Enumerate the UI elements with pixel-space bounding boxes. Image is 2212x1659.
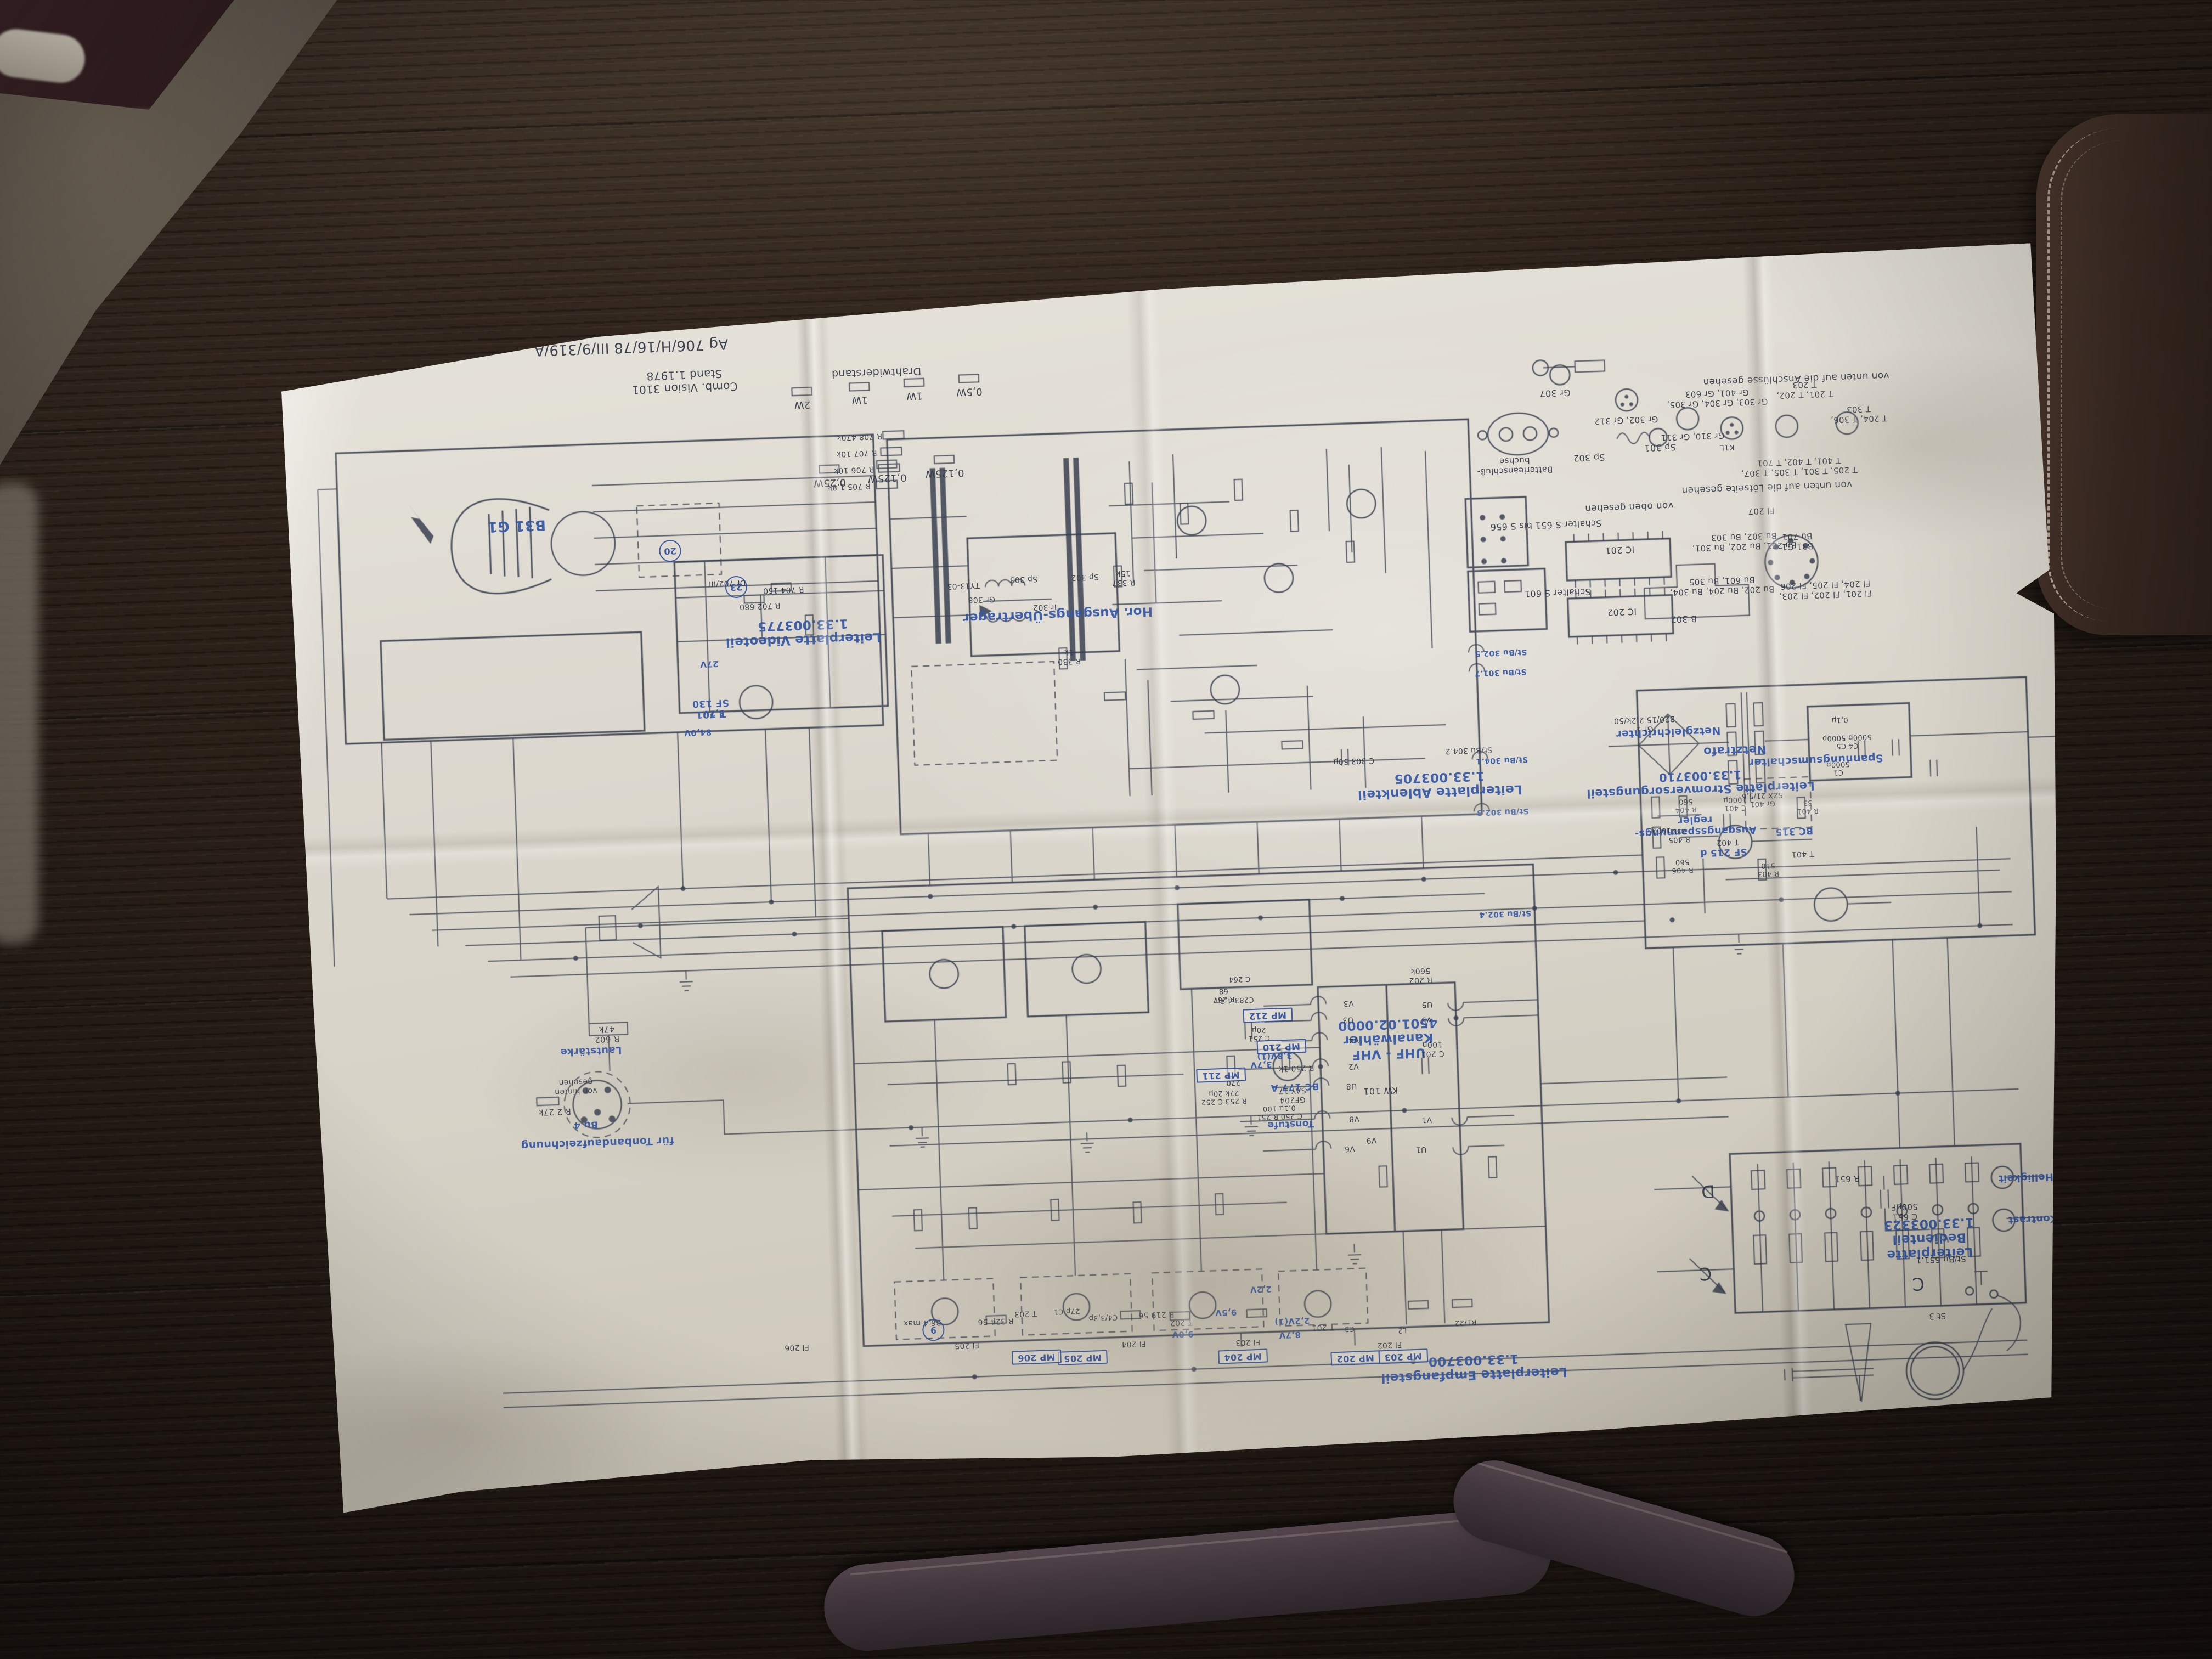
schematic-text: R 706 10k [833,465,874,475]
schematic-text: V9 [1366,1136,1377,1145]
schematic-text: R 401 33 [1797,798,1819,815]
schematic-text: C 651 500µF [1891,1201,1918,1222]
schematic-text: R 406 560 [1671,857,1694,874]
schematic-text: V1 [1421,1115,1432,1124]
schematic-text: Fl 207 [1748,505,1775,516]
schematic-text: Batterieanschluß- buchse [1476,454,1553,476]
schematic-text: T 203 [1014,1308,1037,1318]
schematic-text: K1L [1719,442,1734,452]
schematic-text: U5 [1421,1000,1432,1009]
leather-strap-left-segment [821,1504,1555,1654]
module-label: BC 315 [1775,825,1813,837]
schematic-text: R 324 56 [978,1316,1014,1327]
module-label: Helligkeit [1998,1171,2053,1184]
schematic-text: 20 [659,539,681,562]
schematic-text: Fl 201, Fl 202, Fl 203, Fl 204, Fl 205, … [1779,578,1872,601]
schematic-text: T 202 [1170,1317,1193,1327]
module-label: 2,2V(1) [1274,1315,1310,1326]
schematic-text: R 250 1k [1278,1063,1314,1073]
module-label: St/Bu 301.7 [1474,667,1527,678]
module-label: Spannungsumschalter [1748,752,1883,769]
module-label: 3,2V [703,708,725,718]
schematic-text: Gr 302, Gr 312 [1594,414,1658,426]
module-label: 2,2V [1250,1284,1272,1294]
schematic-text: Gr 310, Gr 311 [1661,430,1725,442]
schematic-text: R 602 47k [594,1024,620,1044]
schematic-text: von hinten gesehen [554,1077,597,1097]
measuring-point-label: MP 204 [1218,1349,1268,1364]
schematic-text: Fl 205 [955,1340,979,1350]
schematic-text: V3 [1343,998,1354,1008]
schematic-text: R1/22 [1454,1318,1476,1327]
measuring-point-label: MP 212 [1243,1008,1293,1023]
schematic-text: 9 [922,1319,945,1341]
schematic-text: Gr 307 [1539,387,1571,398]
schematic-text: Gr 1 B20/15 2,2k/50 [1613,714,1675,735]
schematic-text: R 702 680 [739,601,780,611]
schematic-text: R 330 1k [1057,647,1081,666]
schematic-text: Gr 401 SZX 21/5,6 [1742,790,1784,808]
module-label: St/Bu 302.3 [1476,806,1529,817]
schematic-text: R 219 56 [1138,1310,1175,1320]
schematic-text: GF204 SAY 17 [1278,1086,1306,1105]
schematic-text: von unten auf die Lötseite gesehen [1681,479,1853,496]
module-label: Ausgangsspannungs- regler [1634,812,1757,839]
schematic-text: 0,5W [956,385,983,398]
schematic-text: T 201 [1312,1322,1335,1332]
module-label: St/Bu 304.1 [1476,755,1528,766]
left-light-strip [0,483,38,944]
schematic-text: T 402 [1716,837,1739,847]
schematic-text: von oben gesehen [1585,500,1674,514]
module-label: St/Bu 302.5 [1475,647,1527,658]
schematic-text: C4/3,3p [1088,1313,1118,1322]
schematic-text: R 651 [1835,1173,1860,1183]
module-label: 9,0V [1172,1329,1194,1339]
schematic-text: T 401 [1791,849,1814,859]
schematic-text: R 403 510 [1757,861,1780,878]
schematic-text: R 404 560 [1675,797,1697,814]
schematic-text: Comb. Vision 3101 Stand 1.1978 [631,366,738,396]
schematic-text: 1000µ [1647,826,1671,835]
schematic-text: Fl 204 [1121,1339,1146,1348]
schematic-text: R 704 150 [763,584,804,595]
schematic-text: R 707 10k [836,448,877,459]
module-label: Bu 4 [574,1119,599,1131]
schematic-text: 1W [906,390,923,402]
schematic-text: T 201, T 202, T 203 [1776,379,1833,400]
schematic-text: B31 G1 Bu 701 [1781,531,1813,551]
schematic-text: C [1912,1273,1925,1294]
schematic-text: V2 [1348,1062,1359,1071]
schematic-text: 0,125W [925,467,964,480]
schematic-text: KW 101 [1363,1085,1398,1096]
module-label: SF 215 d [1700,846,1747,859]
schematic-text: D [1701,1181,1715,1202]
module-label: Lautstärke [560,1044,622,1058]
leather-desk-mat [2036,114,2212,635]
schematic-text: Fl 206 [785,1342,809,1352]
schematic-text: Fl 203 [1235,1337,1260,1347]
schematic-text: C 250 R 251 0,1µ 100 [1256,1103,1302,1121]
schematic-text: Bu 202, Bu 204, Bu 304, Bu 601, Bu 305 [1669,574,1774,597]
schematic-text: Fl 202 [1377,1340,1402,1350]
schematic-text: 0,1µ [1831,715,1848,724]
schematic-text: C 264 [1228,974,1250,984]
module-label: 27V [700,658,719,669]
schematic-text: T 205, T 301, T 305, T 307, T 401, T 402… [1741,455,1858,478]
schematic-text: R 705 1,8k [827,481,871,492]
schematic-text: 2W [794,398,811,410]
schematic-text: Schalter S 601 [1524,586,1591,599]
schematic-text: R 2 27k [538,1106,571,1117]
schematic-text: R 405 250 [1668,826,1690,844]
schematic-text: Schalter S 651 bis S 656 [1490,517,1602,532]
schematic-text: Sp 302 [1071,572,1099,582]
schematic-labels: Ag 706/H/16/78 III/9/319/AComb. Vision 3… [278,243,2083,1516]
measuring-point-label: MP 206 [1012,1350,1062,1365]
measuring-point-label: MP 205 [1058,1350,1108,1365]
schematic-text: Gr 308 [968,594,995,604]
schematic-text: R 337 15k [1111,568,1136,587]
module-label: 8,7V [1279,1329,1301,1340]
module-label: St/Bu 302.4 [1479,909,1532,919]
schematic-text: R 708 470k [837,431,883,442]
schematic-text: C4 C5 5000p 5000p [1822,732,1872,751]
schematic-text: 27p C1 [1053,1306,1080,1316]
schematic-text: St 3 [1929,1311,1946,1321]
schematic-text: Sp 303 [1009,574,1037,584]
schematic-text: 1W [851,394,868,406]
schematic-text: St/Bu 651.1 [1916,1254,1966,1265]
module-label: 3,7V [1250,1059,1272,1070]
schematic-text: R 202 560k [1409,966,1433,985]
schematic-text: Drahtwiderstand [831,365,921,380]
schematic-text: 23 [725,575,747,598]
schematic-text: R 253 C 252 27k 20µ [1201,1088,1247,1107]
schematic-text: U1 [1415,1144,1426,1154]
schematic-text: C 251 20µ [1248,1025,1271,1042]
schematic-sheet: Ag 706/H/16/78 III/9/319/AComb. Vision 3… [278,243,2083,1516]
measuring-point-label: MP 202 [1330,1350,1380,1365]
module-label: Leiterplatte Ablenkteil 1.33.003705 [1357,766,1522,802]
schematic-text: V6 [1344,1144,1355,1153]
schematic-text: V5 [1421,1015,1432,1024]
module-label: 84,0V [684,727,712,737]
schematic-text: U8 [1346,1081,1357,1091]
module-label: B31 G1 [487,516,546,535]
schematic-text: Tr 302 [1033,602,1058,612]
schematic-text: U3 [1342,1015,1353,1024]
schematic-text: T 204, T 306, T 303 [1830,403,1887,425]
schematic-text: Sp 302 [1573,452,1605,463]
module-label: Kontrast [2008,1212,2058,1226]
schematic-text: B 302 [1671,613,1697,624]
schematic-text: TY13-03 [947,580,980,591]
module-label: 9,5V [1215,1307,1237,1317]
schematic-text: St/Bu 304.2 [1445,745,1492,755]
module-label: für Tonbandaufzeichnung [521,1134,674,1152]
schematic-text: C283 4,7n [1216,995,1254,1005]
schematic-text: Sp 301 [1644,442,1676,453]
schematic-text: Ag 706/H/16/78 III/9/319/A [534,335,728,359]
schematic-text: C3 [1345,1324,1355,1333]
measuring-point-label: MP 203 [1378,1348,1428,1364]
schematic-text: IC 201 [1605,544,1635,555]
schematic-text: 270 [1226,1078,1240,1087]
schematic-text: C 201 100n [1420,1040,1444,1058]
schematic-text: C1 5000p [1826,759,1850,777]
leather-strap-right-segment [1444,1451,1804,1626]
schematic-text: Gr 303, Gr 304, Gr 305, Gr 401, Gr 603 [1666,386,1768,409]
module-label: Leiterplatte Videoteil 1.33.003775 [725,614,881,650]
schematic-text: C [1699,1263,1712,1284]
schematic-text: C 303 50µ [1333,755,1374,766]
schematic-text: V8 [1349,1114,1360,1124]
schematic-text: L2 [1398,1325,1407,1334]
schematic-text: IC 202 [1607,606,1637,617]
schematic-text: V4 [1348,1035,1359,1045]
